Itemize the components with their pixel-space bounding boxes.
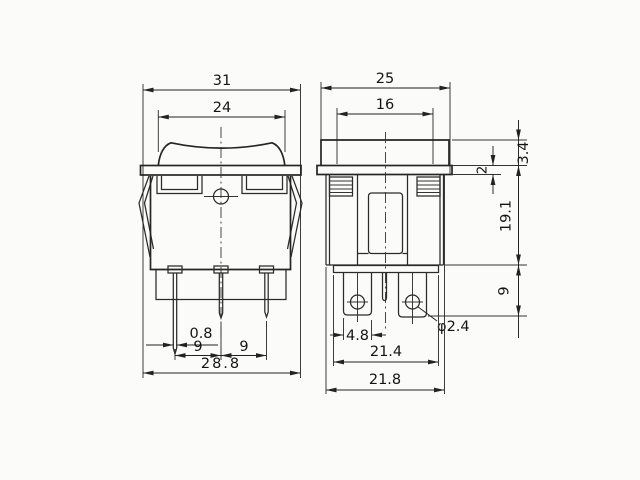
dim-label: 19.1 bbox=[499, 200, 515, 232]
dim-label: 31 bbox=[213, 73, 231, 89]
dim-bezel-height: 3.4 bbox=[516, 141, 532, 164]
latch-window-left bbox=[157, 176, 202, 194]
bezel-top bbox=[321, 140, 449, 165]
middle-pin-side bbox=[383, 273, 387, 301]
dim-label: 9 bbox=[239, 339, 248, 355]
dim-terminal-thickness: 0.8 bbox=[146, 326, 218, 345]
terminal-right-front bbox=[260, 266, 274, 317]
dim-terminal-width: 4.8 bbox=[330, 318, 386, 344]
dim-label: 25 bbox=[376, 71, 394, 87]
side-flange bbox=[317, 166, 452, 175]
dim-label: 21.4 bbox=[370, 344, 402, 360]
center-tower bbox=[358, 175, 408, 266]
front-view: 31 24 bbox=[139, 73, 302, 378]
dim-front-overall: 28.8 bbox=[143, 356, 301, 373]
dim-label: 28.8 bbox=[201, 356, 241, 372]
dim-label: 21.8 bbox=[369, 372, 401, 388]
dim-label: 9 bbox=[497, 286, 513, 295]
latch-ribs-right bbox=[417, 177, 440, 196]
dim-label: φ2.4 bbox=[437, 319, 470, 335]
dim-label: 4.8 bbox=[346, 328, 369, 344]
dim-body-depth: 19.1 bbox=[499, 200, 515, 232]
terminal-right-side bbox=[399, 273, 427, 325]
latch-window-right bbox=[242, 176, 287, 194]
dim-front-flange-width: 31 bbox=[143, 73, 301, 90]
dim-label: 2 bbox=[475, 166, 491, 175]
dim-label: 3.4 bbox=[516, 141, 532, 164]
side-view: 25 16 bbox=[317, 71, 532, 394]
dim-hole-diameter: φ2.4 bbox=[418, 307, 470, 336]
technical-drawing-page: 31 24 bbox=[0, 0, 640, 480]
dim-terminal-length: 9 bbox=[497, 286, 513, 295]
terminal-left-front bbox=[168, 266, 182, 354]
base-plate bbox=[334, 266, 439, 273]
side-body bbox=[326, 175, 444, 266]
dim-panel-gap: 2 bbox=[475, 146, 494, 194]
rocker-actuator bbox=[158, 143, 284, 166]
latch-ribs-left bbox=[330, 177, 353, 196]
dim-side-inner-length: 16 bbox=[337, 97, 433, 164]
terminal-left-side bbox=[344, 273, 372, 323]
dim-label: 16 bbox=[376, 97, 394, 113]
dim-label: 24 bbox=[213, 100, 231, 116]
rocker-switch-drawing: 31 24 bbox=[0, 0, 640, 480]
dim-label: 9 bbox=[193, 339, 202, 355]
